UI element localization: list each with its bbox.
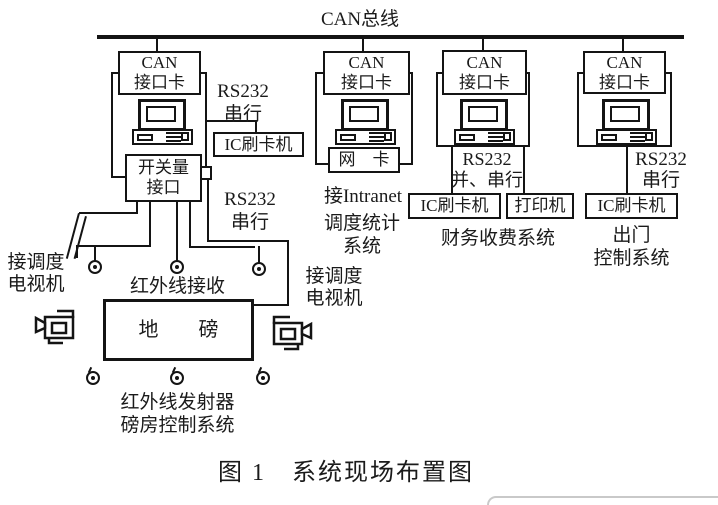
ir-transmitter-icon	[256, 371, 270, 385]
ir-transmitter-icon	[170, 371, 184, 385]
slot-icon	[503, 132, 511, 141]
wire	[149, 202, 151, 247]
vents-icon	[488, 132, 503, 142]
tv-right-label: 接调度 电视机	[299, 266, 369, 310]
wire	[626, 147, 628, 193]
computer-icon-1	[132, 99, 194, 145]
drive-flap-icon	[340, 134, 356, 141]
wire	[94, 247, 96, 261]
station-1-rs232-bottom-label: RS232 串行	[217, 188, 283, 234]
wire	[189, 202, 191, 248]
ir-transmitter-label: 红外线发射器	[100, 391, 255, 414]
ir-transmitter-icon	[86, 371, 100, 385]
screen-icon	[349, 106, 379, 122]
station-1-rs232-top-label: RS232 串行	[210, 80, 276, 126]
slot-icon	[181, 132, 189, 141]
station-1-can-card: CAN 接口卡	[118, 51, 201, 95]
station-3-system-label: 财务收费系统	[430, 227, 566, 250]
station-3-rs232-label: RS232 并、串行	[445, 149, 529, 191]
wire	[76, 245, 78, 258]
station-4-system-label: 出门 控制系统	[584, 224, 679, 270]
tv-camera-icon-left	[33, 302, 89, 350]
station-2-can-card: CAN 接口卡	[323, 51, 410, 95]
screen-icon	[146, 106, 176, 122]
ir-receiver-icon	[88, 260, 102, 274]
vents-icon	[369, 132, 384, 142]
computer-icon-4	[596, 99, 658, 145]
wire	[76, 245, 151, 247]
figure-caption: 图 1 系统现场布置图	[0, 462, 692, 485]
monitor-icon	[460, 99, 508, 131]
system-unit-icon	[335, 129, 396, 145]
monitor-icon	[138, 99, 186, 131]
wire	[79, 212, 138, 214]
can-bus-label: CAN总线	[300, 8, 420, 31]
station-1-stub	[200, 166, 212, 180]
station-3-can-card: CAN 接口卡	[442, 50, 527, 95]
screen-icon	[610, 106, 640, 122]
system-unit-icon	[454, 129, 515, 145]
slot-icon	[384, 132, 392, 141]
wire	[207, 240, 289, 242]
wire	[253, 304, 289, 306]
wire	[258, 246, 260, 263]
vents-icon	[630, 132, 645, 142]
station-2-network-card: 网 卡	[328, 147, 400, 173]
monitor-icon	[602, 99, 650, 131]
computer-icon-2	[335, 99, 397, 145]
ir-receiver-icon	[252, 262, 266, 276]
station-2-system-label: 调度统计 系统	[311, 212, 413, 258]
overlay-corner	[487, 496, 718, 505]
tv-camera-icon-right	[258, 308, 314, 356]
system-unit-icon	[132, 129, 193, 145]
station-4-can-card: CAN 接口卡	[583, 51, 666, 94]
drive-flap-icon	[459, 134, 475, 141]
tv-left-label: 接调度 电视机	[1, 252, 71, 296]
station-4-ic-reader: IC刷卡机	[585, 193, 678, 219]
monitor-icon	[341, 99, 389, 131]
weigh-room-system-label: 磅房控制系统	[100, 414, 255, 437]
can-bus-line	[97, 35, 684, 39]
computer-icon-3	[454, 99, 516, 145]
station-1-ic-reader: IC刷卡机	[213, 132, 304, 157]
ir-receiver-label: 红外线接收	[100, 275, 255, 298]
system-unit-icon	[596, 129, 657, 145]
vents-icon	[166, 132, 181, 142]
weighbridge-box: 地 磅	[103, 299, 254, 361]
wire	[207, 180, 209, 242]
wire	[287, 240, 289, 306]
station-3-printer: 打印机	[506, 193, 574, 219]
station-3-ic-reader: IC刷卡机	[408, 193, 501, 219]
drive-flap-icon	[137, 134, 153, 141]
system-layout-diagram: CAN总线 CAN 接口卡 RS232 串行 IC刷卡机 开关量 接口 RS23…	[0, 0, 718, 505]
station-2-intranet-label: 接Intranet	[312, 185, 414, 208]
screen-icon	[468, 106, 498, 122]
wire	[189, 246, 255, 248]
drive-flap-icon	[601, 134, 617, 141]
slot-icon	[645, 132, 653, 141]
station-1-switch-interface: 开关量 接口	[125, 154, 202, 202]
station-4-rs232-label: RS232 串行	[630, 149, 692, 191]
ir-receiver-icon	[170, 260, 184, 274]
wire	[176, 202, 178, 261]
